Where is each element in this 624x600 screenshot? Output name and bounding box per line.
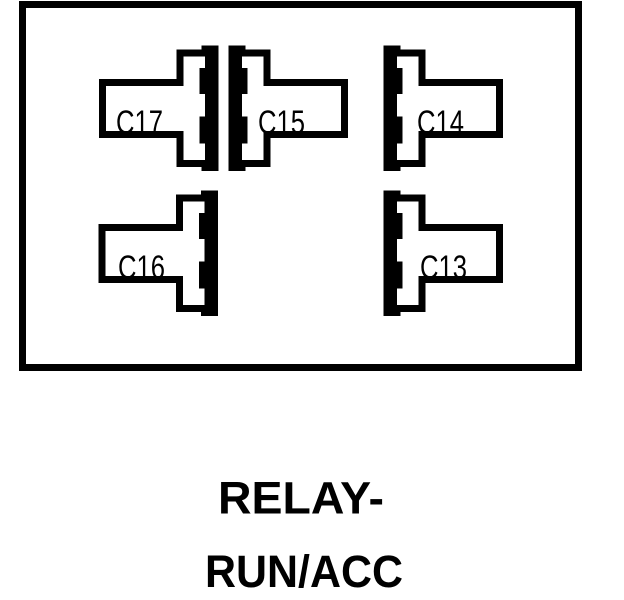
connector-c14-label: C14 (417, 104, 464, 141)
relay-diagram-canvas: C17 C15 C14 C16 C13 RELAY- RUN/ACC (0, 0, 624, 600)
connector-c15-label: C15 (258, 104, 305, 141)
connector-c17-label: C17 (116, 104, 163, 141)
relay-diagram: C17 C15 C14 C16 C13 RELAY- RUN/ACC (0, 0, 624, 600)
caption-line-2: RUN/ACC (205, 546, 403, 597)
caption-line-1: RELAY- (218, 473, 384, 524)
connector-c13-label: C13 (420, 249, 467, 286)
connector-c16-label: C16 (118, 249, 165, 286)
relay-housing-outline (23, 5, 579, 368)
